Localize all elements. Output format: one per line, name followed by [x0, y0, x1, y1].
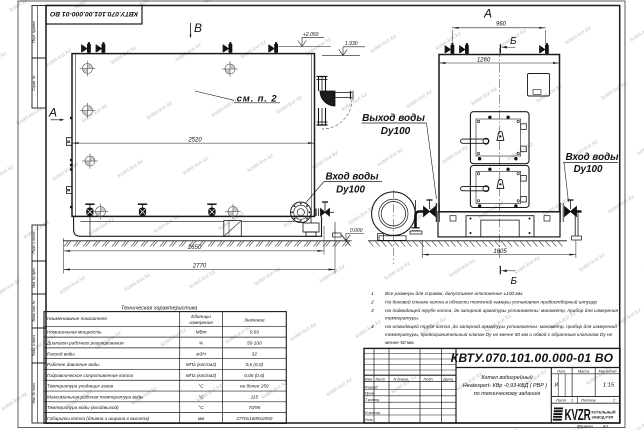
svg-text:см. п. 2: см. п. 2: [237, 94, 278, 105]
svg-text:менее 50 мм.: менее 50 мм.: [385, 340, 415, 346]
svg-text:Dy100: Dy100: [574, 164, 603, 175]
svg-text:960: 960: [496, 22, 507, 28]
svg-text:0,93: 0,93: [250, 330, 260, 335]
svg-text:Изм: Изм: [365, 377, 372, 381]
svg-text:Все размеры для справок, допус: Все размеры для справок, допустимое откл…: [385, 291, 523, 297]
svg-text:Котел водогрейный: Котел водогрейный: [481, 374, 532, 381]
svg-text:1.930: 1.930: [345, 41, 358, 47]
svg-text:70/95: 70/95: [248, 405, 260, 410]
svg-text:Справ. №: Справ. №: [32, 75, 36, 91]
svg-text:Лист: Лист: [555, 398, 567, 403]
svg-text:измерения: измерения: [189, 320, 213, 325]
svg-text:мм: мм: [198, 416, 205, 421]
svg-text:Dy100: Dy100: [336, 185, 365, 196]
svg-text:Единицы: Единицы: [191, 314, 211, 319]
svg-text:Расход воды: Расход воды: [47, 351, 75, 356]
svg-text:не более 250: не более 250: [240, 384, 269, 389]
svg-text:Гидравлическое сопротивление к: Гидравлическое сопротивление котла: [47, 373, 134, 378]
svg-text:1: 1: [371, 291, 374, 297]
svg-text:Максимальная рабочая температу: Максимальная рабочая температура воды: [47, 394, 144, 399]
svg-text:Т.контр.: Т.контр.: [365, 398, 380, 402]
svg-text:Инв. № подл.: Инв. № подл.: [32, 382, 36, 403]
svg-text:МПа (кгс/см2): МПа (кгс/см2): [186, 373, 217, 378]
svg-text:температуры.: температуры.: [385, 317, 419, 322]
svg-text:Перв. примен.: Перв. примен.: [32, 20, 36, 43]
svg-text:0.000: 0.000: [350, 228, 363, 234]
svg-text:1605: 1605: [493, 249, 507, 255]
svg-text:Лист: Лист: [375, 377, 386, 381]
svg-text:0,06 (0,6): 0,06 (0,6): [244, 373, 265, 378]
svg-text:0,6 (6,0): 0,6 (6,0): [246, 362, 264, 367]
svg-text:Утв.: Утв.: [365, 418, 374, 422]
svg-text:Б: Б: [511, 276, 518, 287]
svg-text:по техническому заданию: по техническому заданию: [474, 391, 541, 397]
svg-text:КОТЕЛЬНЫЙ: КОТЕЛЬНЫЙ: [592, 410, 616, 414]
svg-text:2520: 2520: [187, 137, 202, 143]
svg-text:1: 1: [571, 398, 573, 403]
svg-text:Взам. инв. №: Взам. инв. №: [32, 300, 36, 321]
svg-text:Масса: Масса: [578, 369, 589, 373]
svg-text:°С: °С: [198, 384, 204, 389]
svg-text:МПа (кгс/см2): МПа (кгс/см2): [186, 362, 217, 367]
svg-text:Масштаб: Масштаб: [599, 369, 618, 373]
svg-text:Температура уходящих газов: Температура уходящих газов: [47, 384, 114, 389]
svg-text:Подп. и дата: Подп. и дата: [32, 335, 36, 356]
svg-text:Температура воды (вход/выход): Температура воды (вход/выход): [47, 405, 119, 410]
svg-text:°С: °С: [198, 394, 204, 399]
svg-text:KVZR: KVZR: [565, 406, 592, 424]
svg-text:Техническая характеристика: Техническая характеристика: [121, 305, 197, 311]
svg-text:Формат: Формат: [577, 423, 594, 428]
svg-text:50-100: 50-100: [247, 340, 262, 345]
svg-text:115: 115: [251, 394, 259, 399]
svg-text:Вход воды: Вход воды: [566, 152, 620, 163]
svg-text:Инв. № дубл.: Инв. № дубл.: [32, 267, 36, 288]
svg-text:Диапазон рабочего регулировани: Диапазон рабочего регулирования: [46, 340, 124, 345]
svg-text:МВт: МВт: [196, 330, 207, 335]
svg-text:Значение: Значение: [244, 317, 265, 322]
svg-text:4: 4: [371, 324, 374, 330]
svg-text:А: А: [48, 106, 57, 120]
svg-text:Подп. и дата: Подп. и дата: [32, 232, 36, 253]
svg-text:Габариты котла (длинна х ширин: Габариты котла (длинна х ширина х высота…: [47, 416, 150, 421]
svg-text:На боковой стенке котла в обла: На боковой стенке котла в области топочн…: [385, 299, 597, 306]
svg-text:На отводящей трубе котла ,до з: На отводящей трубе котла ,до запорной ар…: [385, 323, 617, 330]
svg-text:м3/ч: м3/ч: [196, 351, 206, 356]
svg-text:Heatexpert- КВр -0,93-КБД ( РВ: Heatexpert- КВр -0,93-КБД ( РВР ): [463, 383, 547, 389]
svg-text:Подп.: Подп.: [424, 377, 434, 381]
svg-text:32: 32: [252, 351, 258, 356]
svg-text:Наименование показателя: Наименование показателя: [47, 316, 107, 321]
svg-text:Разраб.: Разраб.: [365, 385, 379, 389]
svg-text:В: В: [194, 21, 202, 35]
svg-text:°С: °С: [198, 405, 204, 410]
svg-text:Dy100: Dy100: [381, 126, 411, 137]
svg-text:2770х1605х2050: 2770х1605х2050: [235, 416, 272, 421]
svg-text:Рабочее давление воды: Рабочее давление воды: [47, 362, 100, 367]
svg-text:Дата: Дата: [442, 377, 453, 381]
svg-text:1260: 1260: [477, 57, 491, 63]
svg-text:Листов: Листов: [580, 398, 596, 403]
svg-text:Номинальная мощность: Номинальная мощность: [47, 330, 102, 335]
svg-text:Б: Б: [510, 36, 517, 47]
svg-text:Пров.: Пров.: [365, 392, 375, 396]
svg-text:N докум.: N докум.: [394, 377, 409, 381]
svg-text:А3: А3: [602, 423, 609, 428]
svg-text:ЗАВОД РЭП: ЗАВОД РЭП: [592, 415, 614, 419]
svg-text:температуры, предохранительный: температуры, предохранительный клапан Dу…: [385, 331, 613, 338]
svg-text:И: И: [555, 382, 559, 388]
svg-text:2650: 2650: [187, 245, 202, 251]
svg-text:КВТУ.070.101.00.000-01 ВО: КВТУ.070.101.00.000-01 ВО: [451, 351, 614, 365]
svg-text:А: А: [483, 7, 492, 21]
svg-text:2770: 2770: [192, 264, 207, 270]
svg-text:Выход воды: Выход воды: [362, 113, 425, 124]
svg-text:1:15: 1:15: [603, 383, 615, 389]
svg-text:Вход воды: Вход воды: [326, 172, 380, 183]
svg-text:2: 2: [370, 300, 374, 306]
svg-text:На подводящей трубе котла, д: На подводящей трубе котла, до запорной а…: [385, 307, 618, 314]
svg-text:Лит.: Лит.: [556, 369, 566, 373]
svg-text:%: %: [199, 340, 203, 345]
svg-text:КВТУ.070.101.00.000-01 ВО: КВТУ.070.101.00.000-01 ВО: [49, 10, 137, 17]
svg-text:Н.контр.: Н.контр.: [365, 411, 381, 415]
svg-text:3: 3: [371, 308, 374, 314]
svg-text:+2.050: +2.050: [303, 32, 319, 38]
